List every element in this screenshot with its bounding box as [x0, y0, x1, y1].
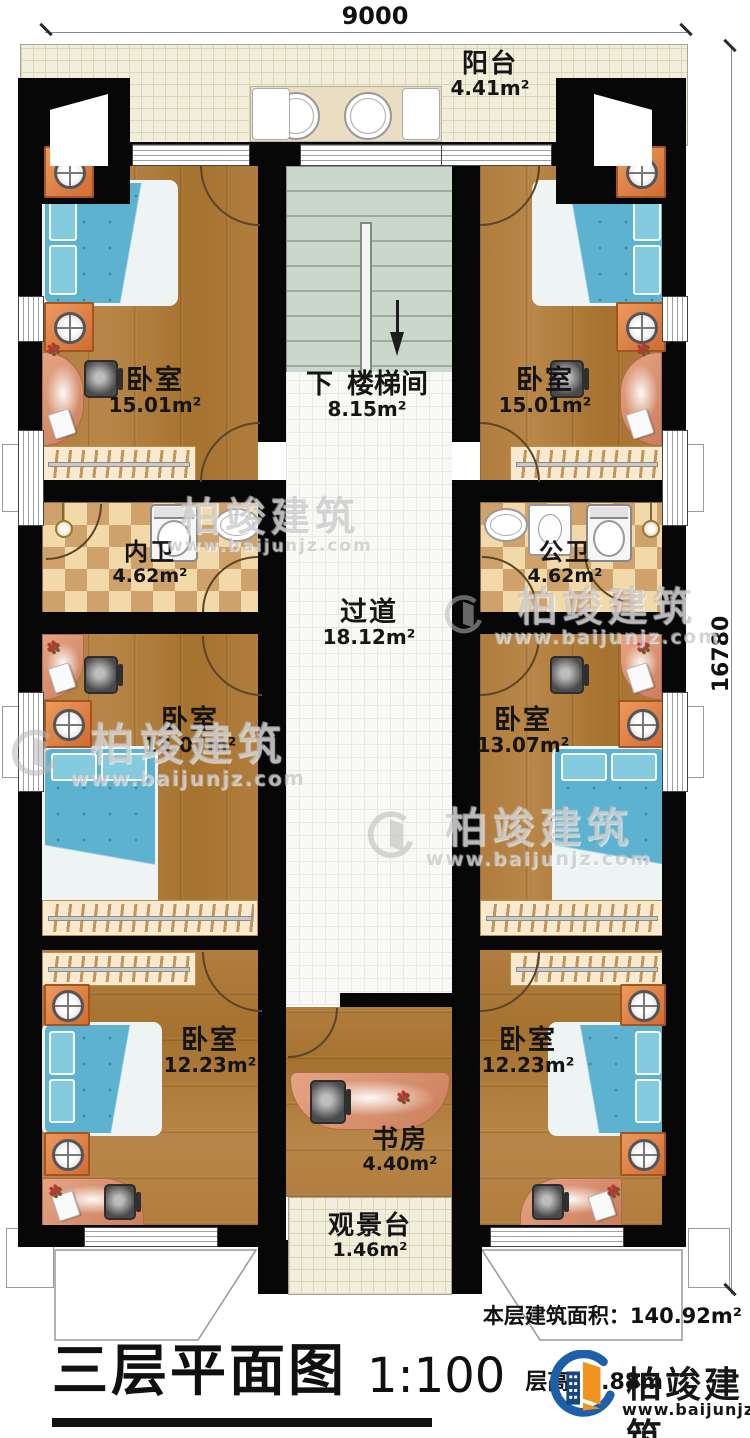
drawing-scale: 1:100 — [367, 1352, 505, 1400]
room-area: 18.12m² — [289, 627, 449, 649]
plant-icon: ✽ — [396, 1090, 410, 1107]
window — [438, 144, 552, 166]
watermark: 柏竣建筑 www.baijunjz.com — [150, 496, 390, 556]
dimension-line-top — [45, 32, 687, 33]
room-label-bedroom-tl: 卧室 15.01m² — [65, 366, 245, 417]
lamp-icon — [628, 990, 660, 1022]
watermark-logo-icon — [362, 810, 418, 866]
room-area: 4.40m² — [310, 1154, 490, 1175]
wardrobe — [42, 952, 196, 986]
room-label-view-deck: 观景台 1.46m² — [292, 1212, 448, 1261]
room-area: 15.01m² — [455, 395, 635, 417]
room-name: 楼梯间 — [347, 370, 428, 399]
floor-plan-page: ✽ ✽ ✽ ✽ ✽ ✽ ✽ — [0, 0, 750, 1438]
plant-icon: ✽ — [46, 640, 60, 657]
corridor-floor — [286, 372, 452, 1005]
window — [662, 296, 688, 342]
watermark-url: www.baijunjz.com — [426, 850, 652, 870]
watermark-brand: 柏竣建筑 — [426, 806, 652, 850]
side-stub — [688, 1228, 730, 1288]
room-name: 卧室 — [65, 366, 245, 395]
room-name: 过道 — [289, 598, 449, 627]
room-name: 卧室 — [120, 1026, 300, 1055]
deck-wall-block — [258, 1240, 288, 1294]
window — [132, 144, 250, 166]
stair-down-label: 下 — [306, 370, 333, 399]
sink-icon — [344, 92, 392, 140]
room-area: 15.01m² — [65, 395, 245, 417]
pendant-light-icon — [642, 520, 660, 538]
room-label-bath-public: 公卫 4.62m² — [475, 540, 655, 586]
floor-area-total: 本层建筑面积：140.92m² — [420, 1300, 742, 1330]
room-area: 4.41m² — [410, 78, 570, 100]
watermark-brand: 柏竣建筑 — [70, 722, 306, 768]
pendant-cord — [650, 502, 652, 520]
desk-chair — [550, 656, 584, 694]
deck-wall-block — [452, 1240, 482, 1294]
room-label-corridor: 过道 18.12m² — [289, 598, 449, 649]
window — [18, 430, 44, 526]
watermark-logo-icon — [440, 590, 486, 644]
down-arrow-icon — [390, 332, 404, 356]
watermark-url: www.baijunjz.com — [167, 538, 373, 556]
room-name: 书房 — [310, 1126, 490, 1154]
computer-icon — [310, 1080, 346, 1124]
window — [300, 144, 442, 166]
stairwell-name-row: 下 楼梯间 — [282, 370, 452, 399]
wardrobe — [480, 900, 664, 936]
room-label-balcony: 阳台 4.41m² — [410, 50, 570, 100]
watermark-brand: 柏竣建筑 — [494, 586, 720, 628]
desk-chair — [84, 656, 118, 694]
brand-name: 柏竣建筑 — [626, 1356, 750, 1438]
room-name: 卧室 — [455, 366, 635, 395]
watermark: 柏竣建筑 www.baijunjz.com — [440, 586, 720, 648]
plant-icon: ✽ — [606, 1184, 620, 1201]
window — [490, 1227, 624, 1247]
window-sill — [686, 444, 704, 512]
room-area: 8.15m² — [282, 399, 452, 421]
room-label-stairwell: 下 楼梯间 8.15m² — [282, 370, 452, 421]
brand-url: www.baijunjz.com — [622, 1400, 750, 1419]
wardrobe-rod — [486, 916, 658, 921]
window — [84, 1227, 218, 1247]
room-area: 12.23m² — [120, 1055, 300, 1077]
title-underline — [52, 1418, 432, 1427]
plant-icon: ✽ — [48, 1184, 62, 1201]
watermark-logo-icon — [6, 727, 62, 785]
room-name: 阳台 — [410, 50, 570, 78]
wardrobe — [42, 900, 258, 936]
water-heater-icon — [252, 88, 290, 140]
lamp-icon — [628, 1139, 660, 1171]
window-sill — [686, 706, 704, 778]
interior-wall — [452, 480, 686, 502]
room-name: 公卫 — [475, 540, 655, 566]
dimension-tick — [723, 39, 736, 52]
interior-wall — [18, 612, 286, 634]
dimension-width-label: 9000 — [320, 4, 430, 28]
stair-handrail — [360, 222, 372, 376]
plant-icon: ✽ — [46, 342, 60, 359]
desk-chair — [532, 1184, 564, 1220]
wardrobe-rod — [48, 462, 190, 467]
room-area: 1.46m² — [292, 1240, 448, 1261]
wardrobe-rod — [48, 967, 190, 972]
dimension-tick — [679, 23, 692, 36]
room-area: 4.62m² — [60, 566, 240, 587]
window — [18, 296, 44, 342]
nightstand — [618, 700, 666, 748]
nightstand — [44, 984, 90, 1026]
window — [662, 430, 688, 526]
brand-logo-icon — [542, 1350, 620, 1428]
interior-wall — [452, 936, 686, 950]
page-title: 三层平面图 — [52, 1344, 347, 1400]
watermark: 柏竣建筑 www.baijunjz.com — [362, 806, 652, 870]
watermark-url: www.baijunjz.com — [70, 768, 306, 789]
room-area: 13.07m² — [433, 735, 613, 757]
lamp-icon — [52, 1139, 84, 1171]
nightstand — [620, 984, 666, 1026]
room-name: 卧室 — [433, 706, 613, 735]
room-label-study: 书房 4.40m² — [310, 1126, 490, 1175]
watermark: 柏竣建筑 www.baijunjz.com — [6, 722, 306, 789]
room-label-bedroom-mr: 卧室 13.07m² — [433, 706, 613, 757]
room-name: 观景台 — [292, 1212, 448, 1240]
plant-icon: ✽ — [636, 342, 650, 359]
room-area: 12.23m² — [438, 1055, 618, 1077]
interior-wall — [18, 936, 258, 950]
watermark-brand: 柏竣建筑 — [167, 496, 373, 538]
sink-icon — [484, 508, 528, 542]
dimension-tick — [39, 23, 52, 36]
wardrobe-rod — [48, 916, 252, 921]
study-wall — [340, 993, 452, 1007]
nightstand — [44, 1132, 90, 1176]
lamp-icon — [52, 990, 84, 1022]
window — [662, 692, 688, 792]
room-label-bedroom-tr: 卧室 15.01m² — [455, 366, 635, 417]
watermark-url: www.baijunjz.com — [494, 628, 720, 648]
room-label-bedroom-bl: 卧室 12.23m² — [120, 1026, 300, 1077]
wardrobe — [42, 446, 196, 482]
desk-chair — [104, 1184, 136, 1220]
room-name: 卧室 — [438, 1026, 618, 1055]
lamp-icon — [627, 709, 659, 741]
stair-direction-line — [396, 300, 399, 334]
room-label-bedroom-br: 卧室 12.23m² — [438, 1026, 618, 1077]
nightstand — [620, 1132, 666, 1176]
